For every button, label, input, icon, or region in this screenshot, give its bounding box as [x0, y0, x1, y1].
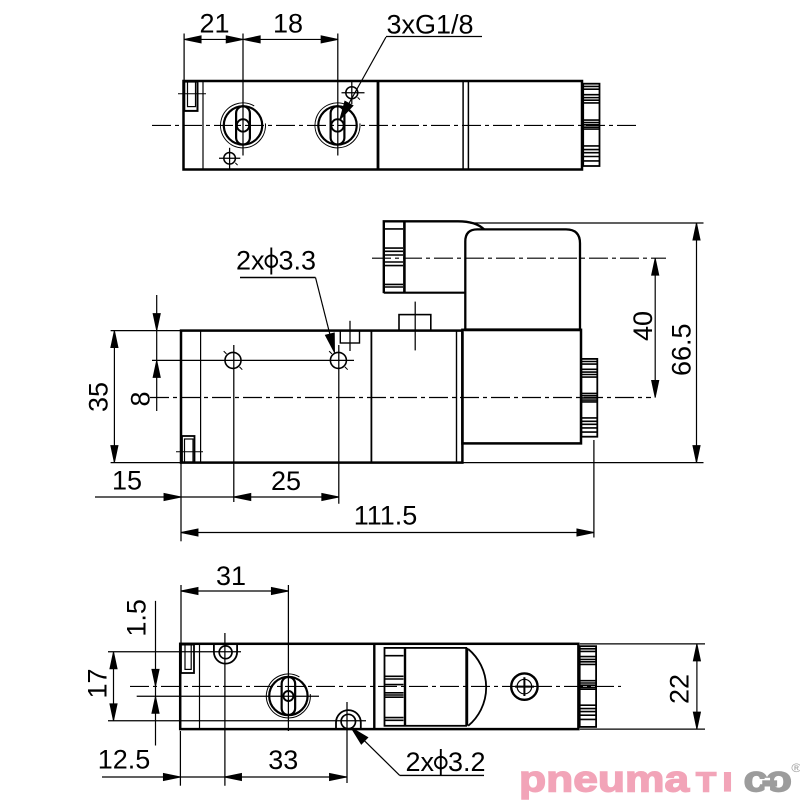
svg-text:1.5: 1.5	[121, 599, 151, 637]
svg-text:25: 25	[271, 466, 301, 496]
svg-text:66.5: 66.5	[667, 323, 697, 376]
svg-text:pneuma: pneuma	[519, 758, 689, 800]
svg-text:2x: 2x	[406, 747, 435, 777]
svg-text:®: ®	[791, 762, 800, 775]
svg-text:3.3: 3.3	[279, 246, 317, 276]
svg-text:17: 17	[82, 668, 112, 698]
svg-text:40: 40	[628, 311, 658, 341]
svg-text:T: T	[696, 768, 717, 798]
svg-text:12.5: 12.5	[98, 745, 151, 775]
svg-text:3.2: 3.2	[448, 747, 486, 777]
svg-text:35: 35	[83, 382, 113, 412]
svg-text:21: 21	[199, 9, 229, 39]
svg-text:2x: 2x	[236, 246, 265, 276]
svg-text:15: 15	[112, 466, 142, 496]
svg-text:3xG1/8: 3xG1/8	[386, 10, 473, 40]
svg-text:31: 31	[216, 561, 246, 591]
svg-text:33: 33	[268, 745, 298, 775]
svg-text:22: 22	[664, 674, 694, 704]
svg-text:8: 8	[125, 391, 155, 406]
svg-text:18: 18	[273, 9, 303, 39]
svg-text:111.5: 111.5	[354, 501, 418, 531]
